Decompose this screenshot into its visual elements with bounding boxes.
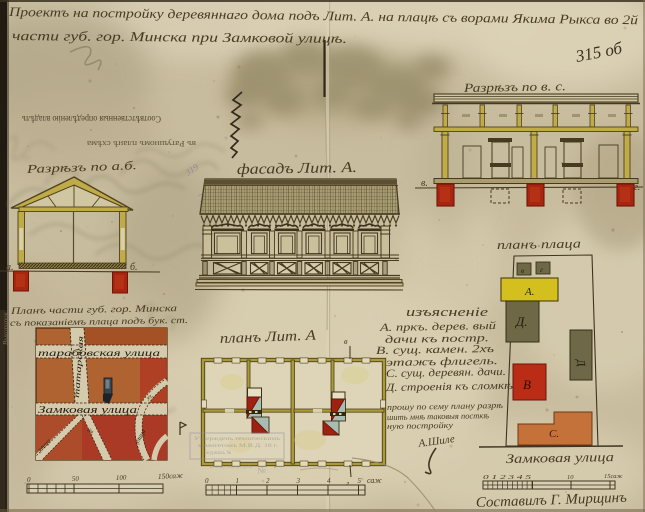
svg-text:Утвержденъ техническимъ: Утвержденъ техническимъ xyxy=(194,436,280,442)
svg-text:изъясненіе: изъясненіе xyxy=(406,304,488,319)
svg-text:100: 100 xyxy=(116,473,127,482)
svg-text:А.: А. xyxy=(524,286,534,298)
svg-text:0: 0 xyxy=(205,477,209,485)
svg-text:50: 50 xyxy=(72,475,80,483)
svg-text:а.: а. xyxy=(6,262,14,273)
svg-text:саж: саж xyxy=(367,476,382,485)
svg-text:4: 4 xyxy=(327,477,331,485)
svg-text:тарабовская улица: тарабовская улица xyxy=(38,348,160,359)
svg-text:в: в xyxy=(521,267,524,275)
svg-text:Соотвѣтственныя опредѣленію вл: Соотвѣтственныя опредѣленію владѣлъ xyxy=(22,113,161,124)
svg-text:Замковая улица: Замковая улица xyxy=(506,449,615,466)
svg-text:делопр. внутр. делъ: делопр. внутр. делъ xyxy=(210,465,252,470)
svg-text:фасадъ Лит. А.: фасадъ Лит. А. xyxy=(237,160,357,178)
svg-text:въ Ратушномъ планѣ схѣма: въ Ратушномъ планѣ схѣма xyxy=(87,139,196,149)
svg-text:Замковая улица: Замковая улица xyxy=(38,405,137,416)
svg-text:В: В xyxy=(523,377,531,392)
svg-text:№: № xyxy=(256,465,267,476)
svg-text:15саж: 15саж xyxy=(604,473,623,480)
svg-text:5: 5 xyxy=(358,477,362,485)
svg-text:в: в xyxy=(344,337,348,346)
svg-text:Д.: Д. xyxy=(514,314,528,329)
svg-text:1: 1 xyxy=(236,477,240,485)
svg-text:С. сущ. деревян. дачи.: С. сущ. деревян. дачи. xyxy=(386,366,506,380)
svg-text:планъ плаца: планъ плаца xyxy=(497,237,581,252)
svg-text:г: г xyxy=(540,266,543,274)
svg-text:части губ. гор. Минска при Зам: части губ. гор. Минска при Замковой улиц… xyxy=(12,28,347,46)
svg-text:С.: С. xyxy=(549,428,559,440)
svg-text:ную постройку: ную постройку xyxy=(387,420,453,431)
svg-text:2: 2 xyxy=(266,477,270,485)
svg-text:150саж: 150саж xyxy=(158,471,184,481)
svg-text:комитетомъ М.В.Д. 18 г.: комитетомъ М.В.Д. 18 г. xyxy=(198,443,278,449)
svg-text:Разрѣзъ по в. с.: Разрѣзъ по в. с. xyxy=(463,79,566,95)
svg-text:планъ Лит. А: планъ Лит. А xyxy=(220,328,317,347)
svg-text:0: 0 xyxy=(27,476,31,484)
svg-text:г.: г. xyxy=(634,182,640,193)
svg-text:0 1 2 3 4 5: 0 1 2 3 4 5 xyxy=(483,474,532,481)
svg-text:Выкопиров.: Выкопиров. xyxy=(2,310,10,345)
svg-text:журналъ №: журналъ № xyxy=(205,450,231,456)
svg-text:б.: б. xyxy=(130,262,138,273)
svg-text:3: 3 xyxy=(296,477,301,485)
svg-text:10: 10 xyxy=(567,474,574,481)
svg-text:Д. строенія къ сломкѣ: Д. строенія къ сломкѣ xyxy=(385,380,513,394)
svg-text:в.: в. xyxy=(421,178,428,189)
